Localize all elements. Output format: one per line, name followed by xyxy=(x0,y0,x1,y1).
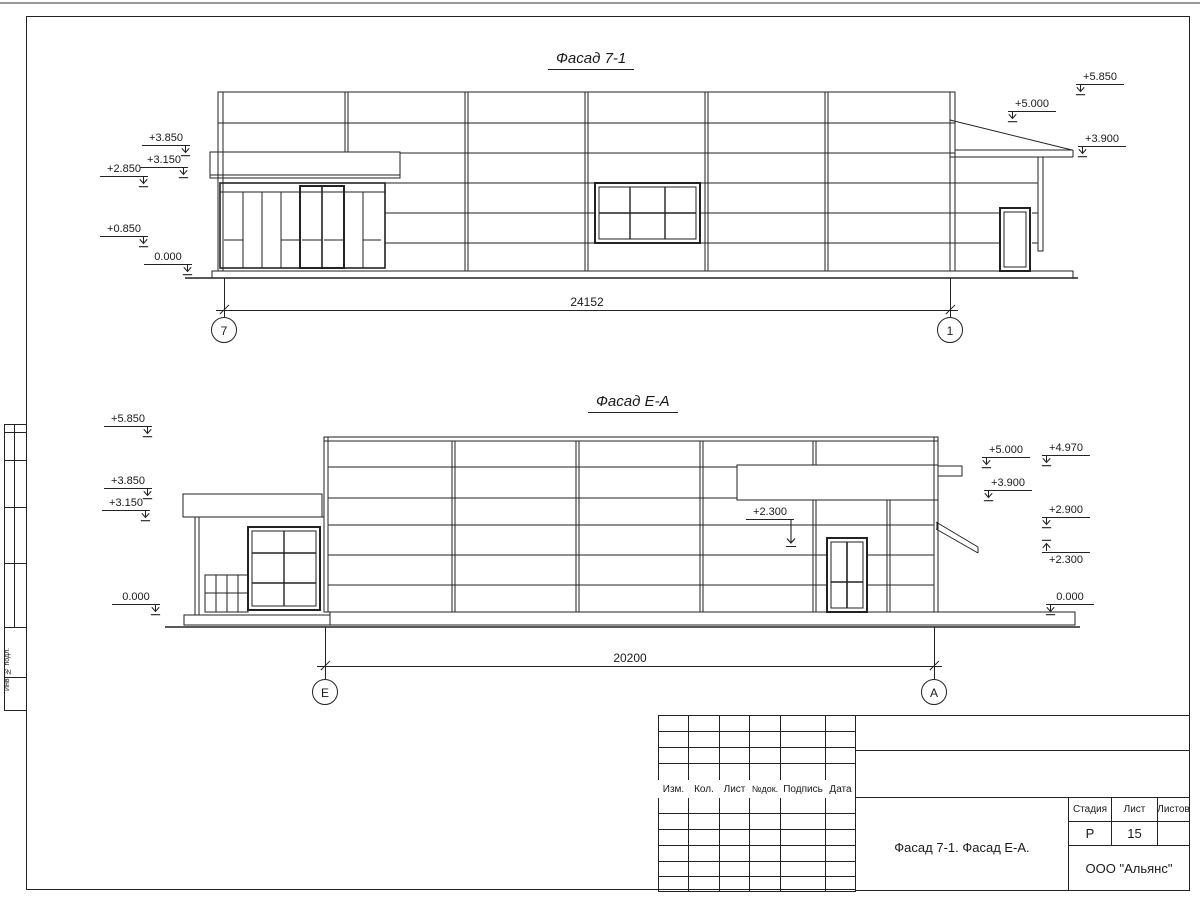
org-row-top xyxy=(855,715,1190,751)
axis-leader xyxy=(950,278,951,317)
axis-circle-a: А xyxy=(921,679,947,705)
elevation-arrow-icon xyxy=(1040,517,1053,530)
elevation-mark: +5.850 xyxy=(104,413,152,427)
drawing-sheet: Инв. № подл. Фасад 7-1 xyxy=(0,0,1200,900)
elevation-arrow-icon xyxy=(137,176,150,189)
elevation-arrow-icon xyxy=(149,604,162,617)
elevation-mark: 0.000 xyxy=(1046,591,1094,605)
dimension-line xyxy=(317,666,942,667)
sheet-edge xyxy=(0,2,1200,4)
stage-value-cell: Р xyxy=(1068,821,1112,846)
elevation-mark: +5.000 xyxy=(982,444,1030,458)
sheet-label-cell: Лист xyxy=(1111,797,1158,822)
elevation-arrow-icon xyxy=(137,236,150,249)
dimension-line xyxy=(216,310,958,311)
elevation-arrow-icon xyxy=(1044,604,1057,617)
company-cell: ООО "Альянс" xyxy=(1068,845,1190,891)
axis-circle-7: 7 xyxy=(211,317,237,343)
axis-leader xyxy=(934,627,935,679)
facade-7-1-drawing xyxy=(180,80,1080,292)
axis-leader xyxy=(224,278,225,317)
elevation-arrow-icon xyxy=(1040,538,1053,551)
elevation-arrow-icon xyxy=(181,264,194,277)
elevation-arrow-icon xyxy=(1040,455,1053,468)
elevation-arrow-icon xyxy=(177,167,190,180)
elevation-mark: +2.300 xyxy=(746,506,794,520)
elevation-mark: +3.850 xyxy=(142,132,190,146)
elevation-mark: +2.300 xyxy=(1042,552,1090,567)
elevation-arrow-icon xyxy=(982,490,995,503)
elevation-mark: +3.900 xyxy=(1078,133,1126,147)
facade-7-1-title: Фасад 7-1 xyxy=(548,50,634,70)
facade-e-a-drawing xyxy=(160,410,1090,635)
org-row-mid xyxy=(855,750,1190,798)
rev-col-doc: №док. xyxy=(749,780,781,798)
sheet-value-cell: 15 xyxy=(1111,821,1158,846)
rev-col-izm: Изм. xyxy=(658,780,689,798)
elevation-mark: +2.900 xyxy=(1042,504,1090,518)
elevation-mark: +5.850 xyxy=(1076,71,1124,85)
elevation-mark: 0.000 xyxy=(112,591,160,605)
elevation-mark: +2.850 xyxy=(100,163,148,177)
elevation-mark: +4.970 xyxy=(1042,442,1090,456)
elevation-mark: +0.850 xyxy=(100,223,148,237)
rev-col-list: Лист xyxy=(719,780,750,798)
elevation-arrow-icon xyxy=(141,426,154,439)
elevation-arrow-icon xyxy=(1074,84,1087,97)
axis-circle-1: 1 xyxy=(937,317,963,343)
elevation-arrow-icon xyxy=(1006,111,1019,124)
elevation-arrow-icon xyxy=(784,519,798,549)
dimension-value: 20200 xyxy=(600,651,660,665)
elevation-arrow-icon xyxy=(139,510,152,523)
elevation-mark: 0.000 xyxy=(144,251,192,265)
axis-circle-e: Е xyxy=(312,679,338,705)
margin-label: Инв. № подл. xyxy=(3,631,12,707)
sheets-label-cell: Листов xyxy=(1157,797,1190,822)
stage-label-cell: Стадия xyxy=(1068,797,1112,822)
elevation-arrow-icon xyxy=(1076,146,1089,159)
axis-leader xyxy=(325,627,326,679)
rev-col-kol: Кол. xyxy=(688,780,720,798)
sheets-value-cell xyxy=(1157,821,1190,846)
elevation-arrow-icon xyxy=(980,457,993,470)
rev-col-podpis: Подпись xyxy=(780,780,826,798)
elevation-mark: +3.850 xyxy=(104,475,152,489)
elevation-mark: +3.150 xyxy=(102,497,150,511)
rev-col-data: Дата xyxy=(825,780,856,798)
doc-title-cell: Фасад 7-1. Фасад Е-А. xyxy=(855,797,1069,891)
elevation-mark: +5.000 xyxy=(1008,98,1056,112)
elevation-mark: +3.900 xyxy=(984,477,1032,491)
dimension-value: 24152 xyxy=(557,295,617,309)
